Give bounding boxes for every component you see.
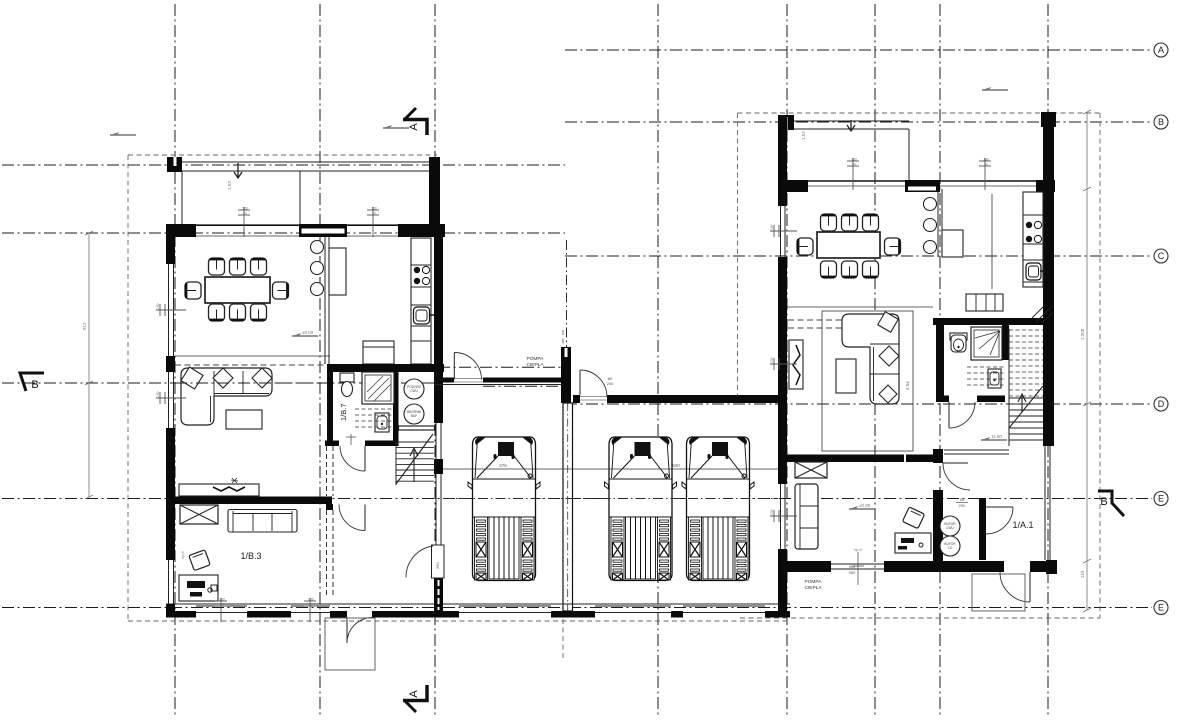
svg-text:150: 150 [770,224,774,230]
svg-text:150: 150 [983,158,989,162]
svg-text:912: 912 [82,322,87,330]
svg-text:904: 904 [849,564,856,569]
svg-text:90: 90 [852,163,856,167]
svg-text:110: 110 [1080,570,1085,578]
svg-text:200: 200 [607,381,614,386]
svg-text:1/B.7: 1/B.7 [339,403,348,421]
svg-text:±0.00: ±0.00 [302,330,314,335]
svg-text:150: 150 [242,207,248,211]
svg-text:90: 90 [220,603,224,607]
svg-text:90: 90 [372,212,376,216]
svg-text:POMPA: POMPA [805,579,823,585]
svg-text:150: 150 [156,391,160,397]
svg-text:260: 260 [435,562,440,569]
svg-text:350: 350 [849,570,856,575]
svg-text:150: 150 [371,207,377,211]
svg-text:CO: CO [948,546,953,550]
svg-text:150: 150 [156,303,160,309]
svg-text:C: C [1158,251,1165,261]
svg-text:B: B [31,379,38,391]
svg-text:A: A [408,123,420,131]
svg-text:BUF: BUF [411,414,417,418]
svg-text:4.04: 4.04 [905,381,910,390]
svg-text:B: B [1100,496,1107,508]
svg-text:150: 150 [851,158,857,162]
svg-text:276: 276 [499,463,507,468]
svg-text:1.53: 1.53 [227,181,232,190]
svg-text:A: A [1158,45,1164,55]
svg-text:150: 150 [770,357,774,363]
svg-text:150: 150 [770,509,774,515]
svg-text:CIEPŁA: CIEPŁA [804,585,822,591]
svg-text:80: 80 [960,497,965,502]
svg-text:hp=0: hp=0 [181,551,185,559]
svg-text:90: 90 [984,163,988,167]
svg-text:1/A.1: 1/A.1 [1012,520,1033,530]
svg-text:1.368: 1.368 [1080,328,1085,340]
svg-text:CWU: CWU [410,389,418,393]
svg-text:E: E [1158,603,1164,613]
svg-text:150: 150 [219,598,225,602]
svg-text:B: B [1158,117,1164,127]
svg-text:CWU: CWU [946,526,954,530]
svg-text:A: A [408,690,420,698]
svg-text:200: 200 [959,503,966,508]
svg-text:D: D [1158,399,1165,409]
svg-text:hp=0: hp=0 [854,548,862,552]
svg-text:90: 90 [243,212,247,216]
svg-text:90: 90 [309,603,313,607]
svg-text:1.53: 1.53 [801,131,806,140]
svg-text:±0.00: ±0.00 [859,503,871,508]
svg-text:11.60: 11.60 [991,434,1002,439]
svg-text:1/B.3: 1/B.3 [240,551,261,561]
svg-text:640: 640 [672,463,680,468]
svg-text:CIEPŁA: CIEPŁA [526,362,544,368]
svg-text:150: 150 [308,598,314,602]
svg-text:POMPA: POMPA [527,356,545,362]
svg-text:E: E [1158,494,1164,504]
